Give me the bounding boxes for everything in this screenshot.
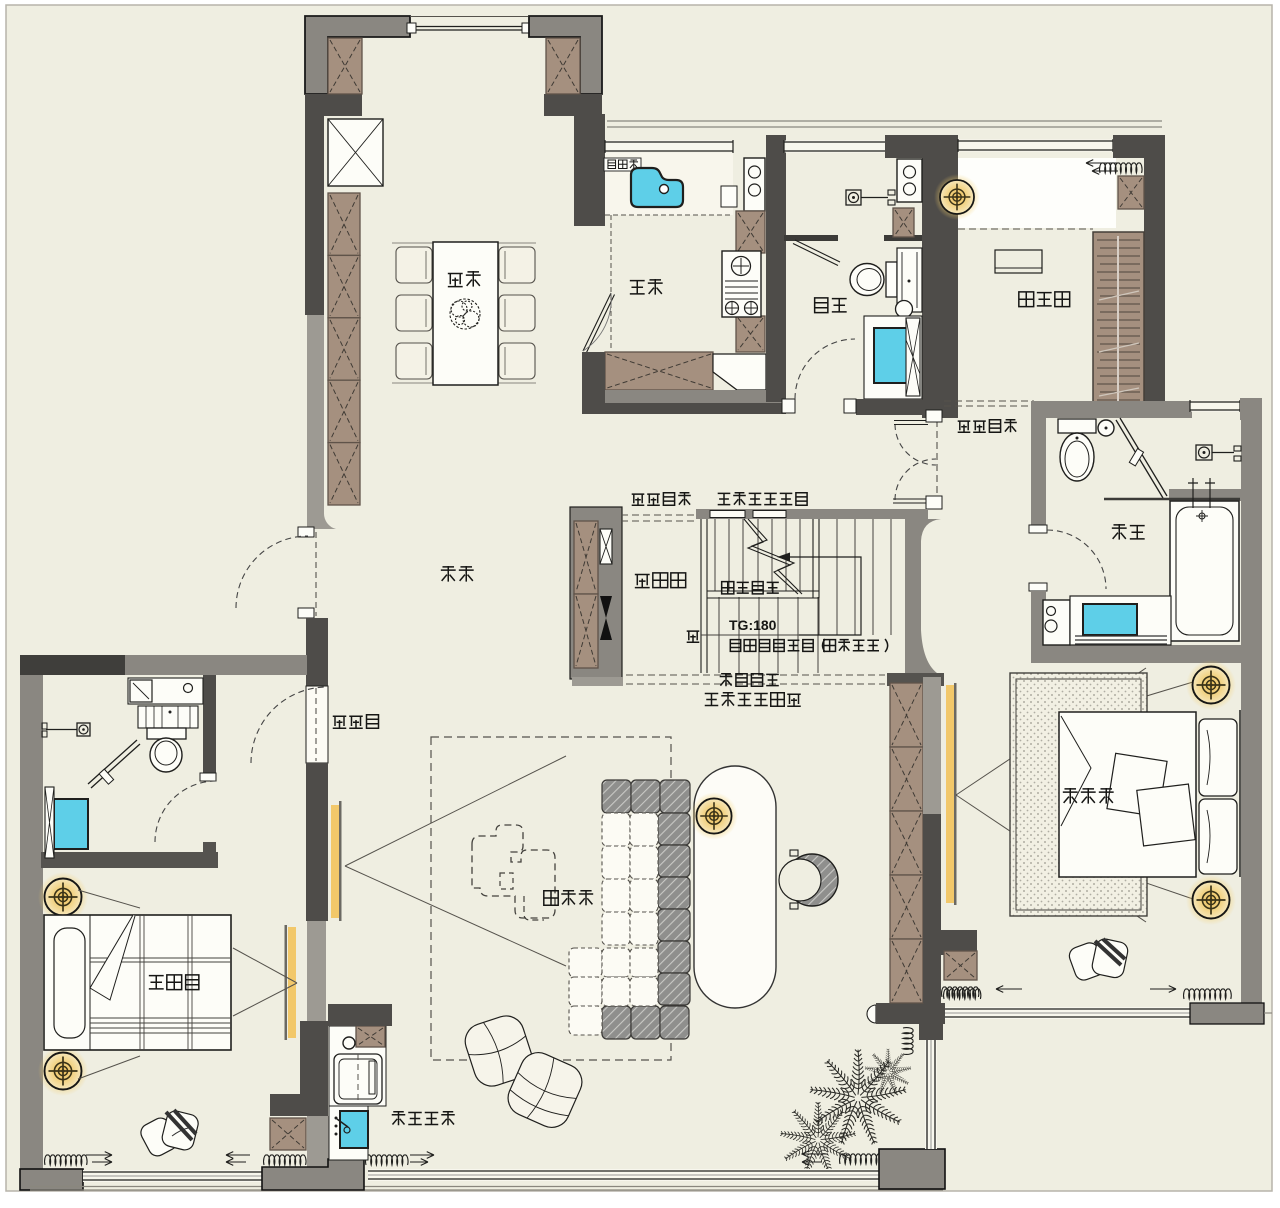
svg-text:TG:180: TG:180	[729, 617, 777, 633]
